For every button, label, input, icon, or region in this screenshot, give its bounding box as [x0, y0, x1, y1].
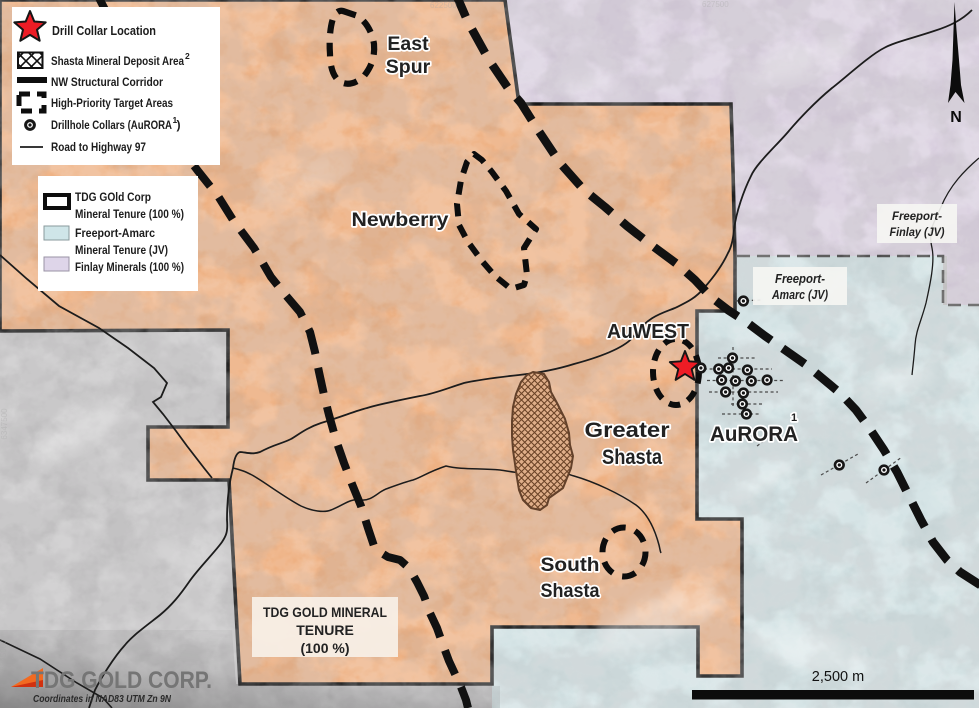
svg-text:Shasta: Shasta: [541, 580, 600, 602]
svg-text:6345000: 6345000: [0, 639, 8, 671]
svg-text:Coordinates in NAD83 UTM Zn 9N: Coordinates in NAD83 UTM Zn 9N: [33, 693, 171, 705]
svg-text:1: 1: [791, 412, 797, 424]
svg-text:AuRORA: AuRORA: [710, 423, 798, 446]
svg-text:2: 2: [185, 51, 190, 61]
svg-text:Freeport-Amarc: Freeport-Amarc: [75, 226, 155, 240]
svg-text:2,500 m: 2,500 m: [812, 669, 864, 685]
svg-text:TDG GOld Corp: TDG GOld Corp: [75, 190, 151, 204]
svg-text:N: N: [950, 109, 962, 126]
svg-text:Shasta Mineral Deposit Area: Shasta Mineral Deposit Area: [51, 54, 184, 68]
svg-text:Finlay (JV): Finlay (JV): [890, 225, 945, 239]
svg-text:(100 %): (100 %): [300, 640, 349, 656]
svg-text:Greater: Greater: [585, 419, 670, 442]
svg-text:High-Priority Target Areas: High-Priority Target Areas: [51, 96, 173, 110]
svg-text:Mineral Tenure (JV): Mineral Tenure (JV): [75, 243, 168, 257]
svg-text:): ): [177, 118, 181, 132]
svg-text:NW Structural Corridor: NW Structural Corridor: [51, 75, 163, 89]
svg-text:Mineral Tenure (100 %): Mineral Tenure (100 %): [75, 207, 184, 221]
svg-text:Drill Collar Location: Drill Collar Location: [52, 23, 156, 38]
svg-text:Shasta: Shasta: [602, 446, 662, 469]
svg-text:East: East: [387, 33, 429, 55]
svg-text:Finlay Minerals (100 %): Finlay Minerals (100 %): [75, 260, 184, 274]
svg-text:Drillhole Collars (AuRORA: Drillhole Collars (AuRORA: [51, 118, 172, 132]
svg-text:Freeport-: Freeport-: [775, 272, 825, 286]
svg-text:Freeport-: Freeport-: [892, 209, 942, 223]
svg-text:South: South: [541, 554, 600, 576]
svg-text:AuWEST: AuWEST: [607, 320, 689, 343]
svg-text:Newberry: Newberry: [352, 209, 449, 231]
svg-text:627500: 627500: [702, 0, 729, 9]
svg-text:TENURE: TENURE: [296, 622, 354, 638]
svg-text:Amarc (JV): Amarc (JV): [771, 288, 828, 302]
svg-text:TDG GOLD CORP.: TDG GOLD CORP.: [31, 667, 212, 694]
svg-text:TDG GOLD MINERAL: TDG GOLD MINERAL: [263, 604, 387, 620]
svg-text:6347500: 6347500: [0, 408, 9, 440]
svg-text:Road to Highway 97: Road to Highway 97: [51, 140, 146, 154]
svg-text:622500: 622500: [430, 1, 457, 10]
svg-text:Spur: Spur: [386, 56, 431, 78]
